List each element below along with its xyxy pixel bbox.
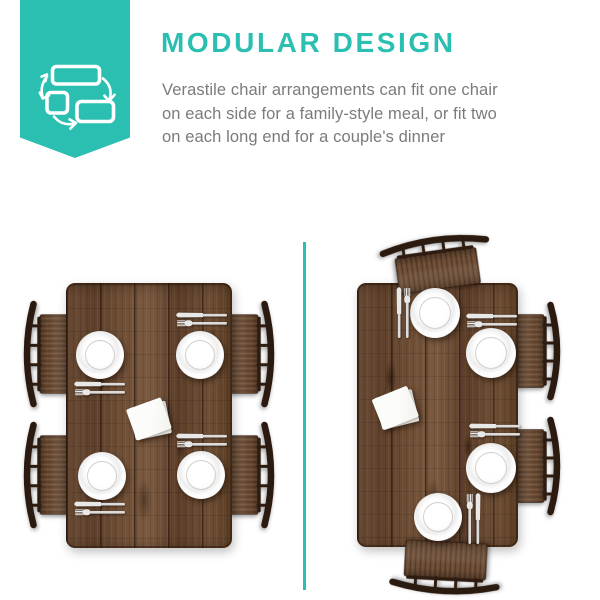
- dinner-plate: [410, 288, 460, 338]
- knife-and-fork-set: [468, 422, 522, 438]
- chair-top-view-right-bottom: [232, 421, 274, 529]
- product-infographic: MODULAR DESIGN Verastile chair arrangeme…: [0, 0, 600, 600]
- dinner-plate: [466, 328, 516, 378]
- dinner-plate: [76, 331, 124, 379]
- dinner-plate: [176, 331, 224, 379]
- dinner-plate: [177, 451, 225, 499]
- knife-and-fork-set: [73, 500, 127, 516]
- dinner-plate: [414, 493, 462, 541]
- chair-top-view-right-top: [232, 300, 274, 408]
- chair-top-view-right-bottom: [518, 416, 560, 516]
- knife-and-fork-set: [175, 432, 229, 448]
- knife-and-fork-set: [466, 492, 482, 546]
- folded-napkin: [128, 400, 171, 440]
- chair-top-view-right-top: [518, 301, 560, 401]
- chair-top-view-left-bottom: [24, 421, 66, 529]
- knife-and-fork-set: [395, 286, 411, 340]
- chair-top-view-left-top: [24, 300, 66, 408]
- knife-and-fork-set: [175, 311, 229, 327]
- chair-top-view-bottom-end: [388, 549, 502, 597]
- dinner-plate: [78, 452, 126, 500]
- dinner-plate: [466, 443, 516, 493]
- chair-top-view-top-end: [378, 229, 495, 286]
- knife-and-fork-set: [73, 380, 127, 396]
- knife-and-fork-set: [465, 312, 519, 328]
